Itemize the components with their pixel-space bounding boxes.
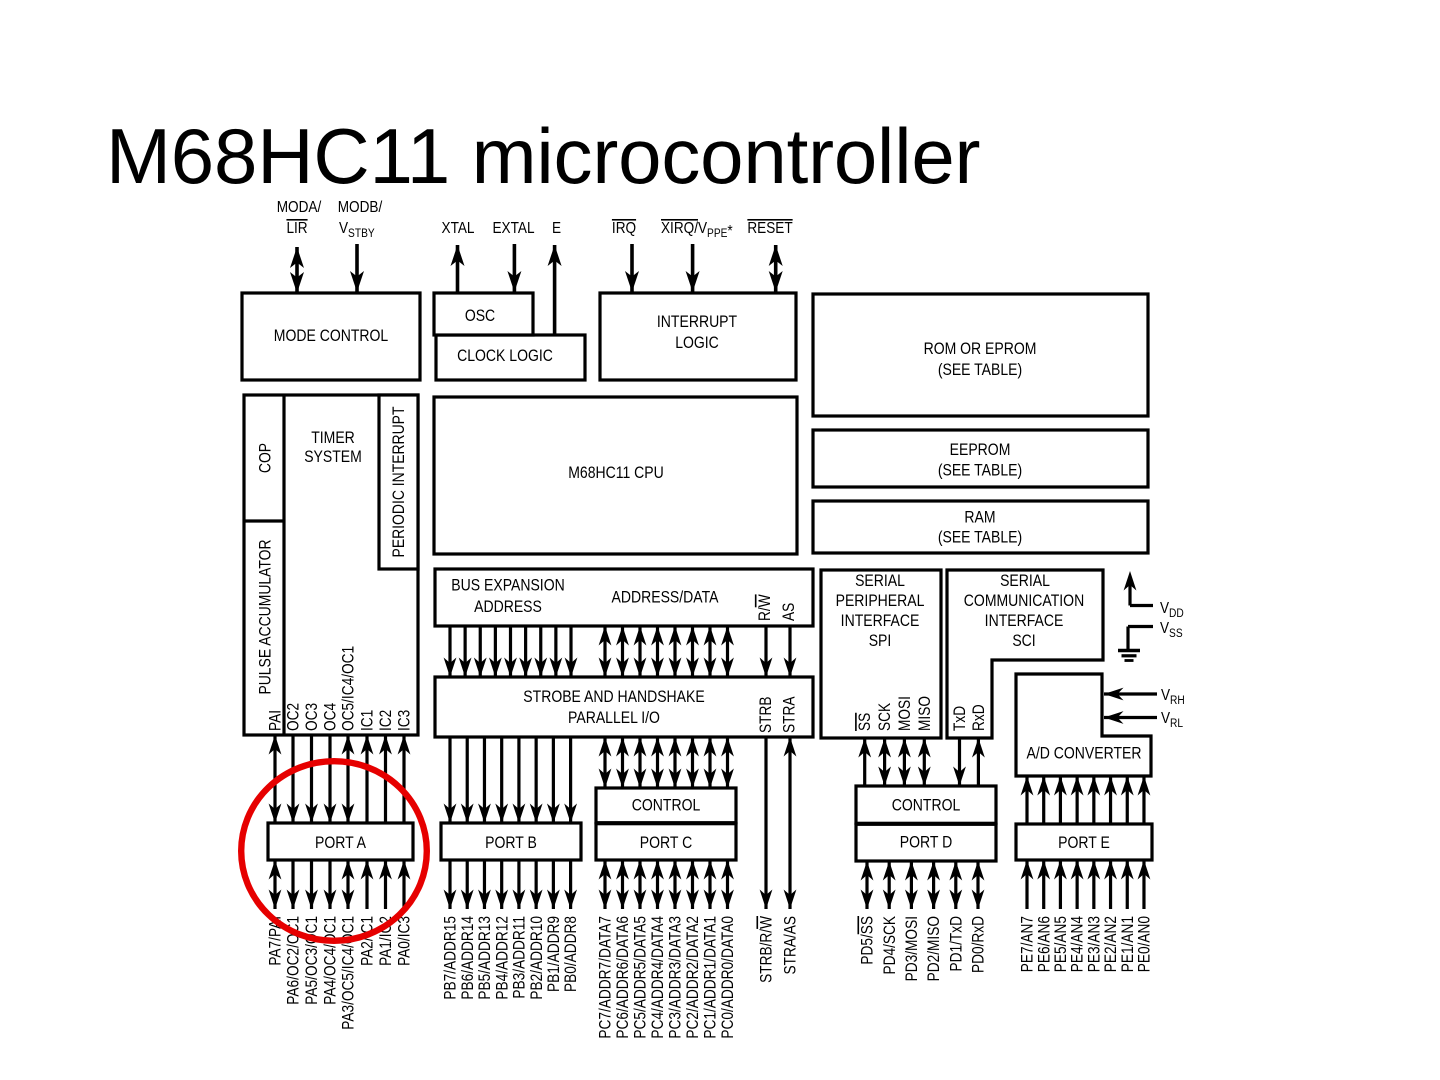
svg-text:PB7/ADDR15: PB7/ADDR15 — [442, 916, 460, 1000]
svg-text:M68HC11 CPU: M68HC11 CPU — [568, 464, 664, 482]
svg-text:MODB/: MODB/ — [338, 199, 383, 216]
svg-text:(SEE TABLE): (SEE TABLE) — [938, 461, 1022, 479]
svg-text:MODA/: MODA/ — [277, 199, 322, 216]
svg-text:(SEE TABLE): (SEE TABLE) — [938, 528, 1022, 546]
svg-text:PE0/AN0: PE0/AN0 — [1136, 916, 1154, 972]
svg-text:STRA: STRA — [780, 697, 798, 733]
svg-text:PD2/MISO: PD2/MISO — [925, 916, 943, 981]
svg-text:PA2/IC1: PA2/IC1 — [359, 916, 377, 966]
svg-text:INTERFACE: INTERFACE — [985, 612, 1064, 630]
svg-text:COP: COP — [256, 443, 274, 473]
svg-text:MISO: MISO — [916, 696, 934, 731]
svg-text:PD4/SCK: PD4/SCK — [881, 916, 899, 975]
svg-text:PC6/ADDR6/DATA6: PC6/ADDR6/DATA6 — [614, 916, 632, 1039]
svg-text:PC5/ADDR5/DATA5: PC5/ADDR5/DATA5 — [632, 916, 650, 1039]
svg-text:PE6/AN6: PE6/AN6 — [1035, 916, 1053, 972]
svg-text:STRB: STRB — [757, 697, 775, 733]
svg-text:INTERFACE: INTERFACE — [841, 612, 920, 630]
svg-text:PC0/ADDR0/DATA0: PC0/ADDR0/DATA0 — [719, 916, 737, 1039]
svg-text:IRQ: IRQ — [612, 220, 636, 237]
svg-text:STROBE AND HANDSHAKE: STROBE AND HANDSHAKE — [523, 688, 704, 706]
svg-text:PB6/ADDR14: PB6/ADDR14 — [459, 916, 477, 1000]
svg-text:PB4/ADDR12: PB4/ADDR12 — [493, 916, 511, 1000]
svg-text:PD1/TxD: PD1/TxD — [947, 916, 965, 972]
svg-text:IC3: IC3 — [395, 710, 413, 731]
svg-text:CLOCK LOGIC: CLOCK LOGIC — [457, 347, 553, 365]
svg-text:PE4/AN4: PE4/AN4 — [1069, 916, 1087, 972]
svg-text:OC3: OC3 — [303, 703, 321, 731]
svg-text:COMMUNICATION: COMMUNICATION — [964, 592, 1084, 610]
svg-text:PORT E: PORT E — [1058, 834, 1110, 852]
svg-text:OC4: OC4 — [321, 703, 339, 731]
svg-text:AS: AS — [780, 603, 798, 621]
svg-text:PA4/OC4/OC1: PA4/OC4/OC1 — [322, 916, 340, 1005]
svg-text:EXTAL: EXTAL — [492, 220, 534, 237]
svg-text:CONTROL: CONTROL — [632, 796, 701, 814]
svg-text:PE7/AN7: PE7/AN7 — [1019, 916, 1037, 972]
svg-text:ROM OR EPROM: ROM OR EPROM — [924, 340, 1037, 358]
svg-text:PD5/SS: PD5/SS — [859, 916, 877, 965]
svg-text:M68HC11 microcontroller: M68HC11 microcontroller — [106, 112, 980, 200]
svg-text:PERIPHERAL: PERIPHERAL — [836, 592, 925, 610]
svg-text:STRB/R/W: STRB/R/W — [758, 915, 776, 983]
svg-text:PE5/AN5: PE5/AN5 — [1052, 916, 1070, 972]
svg-text:RAM: RAM — [964, 508, 995, 526]
svg-text:PAI: PAI — [266, 710, 284, 731]
svg-text:PORT C: PORT C — [640, 834, 692, 852]
svg-text:PC2/ADDR2/DATA2: PC2/ADDR2/DATA2 — [684, 916, 702, 1039]
svg-text:RxD: RxD — [970, 704, 988, 731]
svg-text:PC4/ADDR4/DATA4: PC4/ADDR4/DATA4 — [649, 916, 667, 1039]
svg-text:TxD: TxD — [951, 706, 969, 731]
svg-text:PB2/ADDR10: PB2/ADDR10 — [528, 916, 546, 1000]
svg-text:CONTROL: CONTROL — [892, 796, 961, 814]
svg-text:SS: SS — [856, 713, 874, 731]
svg-text:PULSE ACCUMULATOR: PULSE ACCUMULATOR — [256, 539, 274, 694]
svg-text:OC5/IC4/OC1: OC5/IC4/OC1 — [339, 646, 357, 731]
svg-text:(SEE TABLE): (SEE TABLE) — [938, 361, 1022, 379]
svg-text:SERIAL: SERIAL — [855, 572, 905, 590]
svg-text:PE2/AN2: PE2/AN2 — [1102, 916, 1120, 972]
svg-text:TIMER: TIMER — [311, 429, 355, 447]
svg-text:LIR: LIR — [286, 220, 307, 237]
svg-text:PORT B: PORT B — [485, 834, 537, 852]
svg-text:PARALLEL I/O: PARALLEL I/O — [568, 709, 660, 727]
svg-text:PA5/OC3/OC1: PA5/OC3/OC1 — [303, 916, 321, 1005]
svg-text:E: E — [552, 220, 561, 237]
svg-text:LOGIC: LOGIC — [675, 334, 719, 352]
svg-text:PA0/IC3: PA0/IC3 — [396, 916, 414, 966]
svg-text:OSC: OSC — [465, 307, 495, 325]
svg-text:SPI: SPI — [869, 632, 892, 650]
svg-text:OC2: OC2 — [284, 703, 302, 731]
svg-text:SCK: SCK — [876, 703, 894, 731]
svg-text:STRA/AS: STRA/AS — [782, 916, 800, 975]
svg-text:PC7/ADDR7/DATA7: PC7/ADDR7/DATA7 — [597, 916, 615, 1039]
svg-text:XTAL: XTAL — [442, 220, 475, 237]
svg-text:PD3/MOSI: PD3/MOSI — [903, 916, 921, 981]
svg-text:A/D CONVERTER: A/D CONVERTER — [1027, 744, 1142, 762]
svg-text:PD0/RxD: PD0/RxD — [970, 916, 988, 973]
svg-text:R/W: R/W — [756, 594, 774, 621]
svg-text:PORT D: PORT D — [900, 833, 952, 851]
svg-text:INTERRUPT: INTERRUPT — [657, 313, 737, 331]
svg-text:PA3/OC5/IC4/OC1: PA3/OC5/IC4/OC1 — [340, 916, 358, 1030]
svg-text:PC3/ADDR3/DATA3: PC3/ADDR3/DATA3 — [667, 916, 685, 1039]
svg-text:EEPROM: EEPROM — [950, 441, 1011, 459]
svg-text:PE1/AN1: PE1/AN1 — [1119, 916, 1137, 972]
svg-text:PB3/ADDR11: PB3/ADDR11 — [510, 916, 528, 999]
svg-text:MOSI: MOSI — [896, 696, 914, 731]
svg-text:PORT A: PORT A — [315, 834, 367, 852]
svg-text:IC2: IC2 — [377, 710, 395, 731]
svg-text:SYSTEM: SYSTEM — [304, 448, 362, 466]
svg-text:IC1: IC1 — [358, 710, 376, 731]
svg-text:RESET: RESET — [747, 220, 792, 237]
svg-text:PB1/ADDR9: PB1/ADDR9 — [545, 916, 563, 992]
svg-text:ADDRESS/DATA: ADDRESS/DATA — [612, 588, 720, 606]
svg-text:PE3/AN3: PE3/AN3 — [1085, 916, 1103, 972]
svg-text:MODE CONTROL: MODE CONTROL — [274, 327, 388, 345]
svg-text:PC1/ADDR1/DATA1: PC1/ADDR1/DATA1 — [702, 916, 720, 1039]
svg-text:BUS EXPANSION: BUS EXPANSION — [451, 576, 564, 594]
svg-text:ADDRESS: ADDRESS — [474, 598, 542, 616]
svg-text:PB0/ADDR8: PB0/ADDR8 — [562, 916, 580, 992]
svg-text:PERIODIC INTERRUPT: PERIODIC INTERRUPT — [390, 407, 408, 558]
svg-text:PB5/ADDR13: PB5/ADDR13 — [476, 916, 494, 1000]
svg-text:SERIAL: SERIAL — [1000, 572, 1050, 590]
svg-text:SCI: SCI — [1012, 632, 1035, 650]
